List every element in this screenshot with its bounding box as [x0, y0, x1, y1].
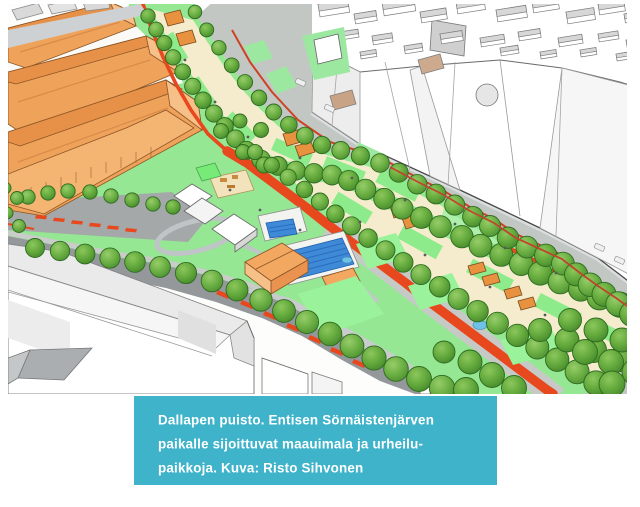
svg-text:paikkoja. Kuva: Risto Sihvonen: paikkoja. Kuva: Risto Sihvonen — [158, 461, 363, 476]
svg-text:Dallapen puisto. Entisen Sörnä: Dallapen puisto. Entisen Sörnäistenjärve… — [158, 413, 434, 428]
svg-text:paikalle sijoittuvat maauimala: paikalle sijoittuvat maauimala ja urheil… — [158, 437, 423, 452]
